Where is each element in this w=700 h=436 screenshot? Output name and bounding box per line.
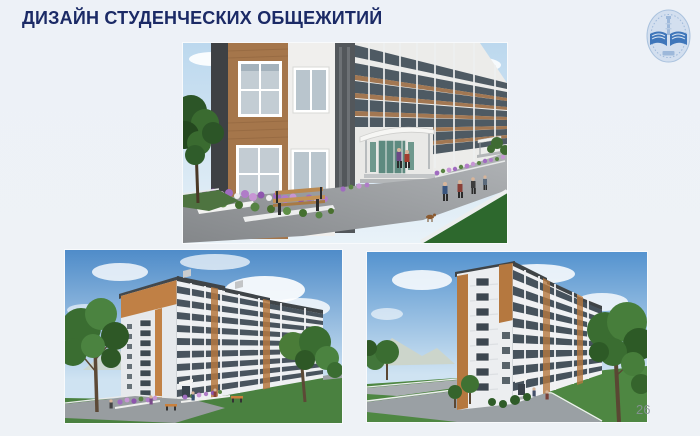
dormitory-corner-view-render xyxy=(65,250,342,423)
slide-canvas: ДИЗАЙН СТУДЕНЧЕСКИХ ОБЩЕЖИТИЙ xyxy=(0,0,700,436)
dormitory-end-facade-render xyxy=(367,252,647,422)
logo-tower-cap xyxy=(666,16,671,19)
window xyxy=(293,67,329,113)
dormitory-street-entrance-render xyxy=(183,43,507,243)
logo-banner xyxy=(663,51,675,56)
university-emblem-icon xyxy=(645,7,692,64)
large-window xyxy=(238,61,282,117)
slide-title: ДИЗАЙН СТУДЕНЧЕСКИХ ОБЩЕЖИТИЙ xyxy=(22,8,382,29)
page-number: 26 xyxy=(636,402,650,417)
